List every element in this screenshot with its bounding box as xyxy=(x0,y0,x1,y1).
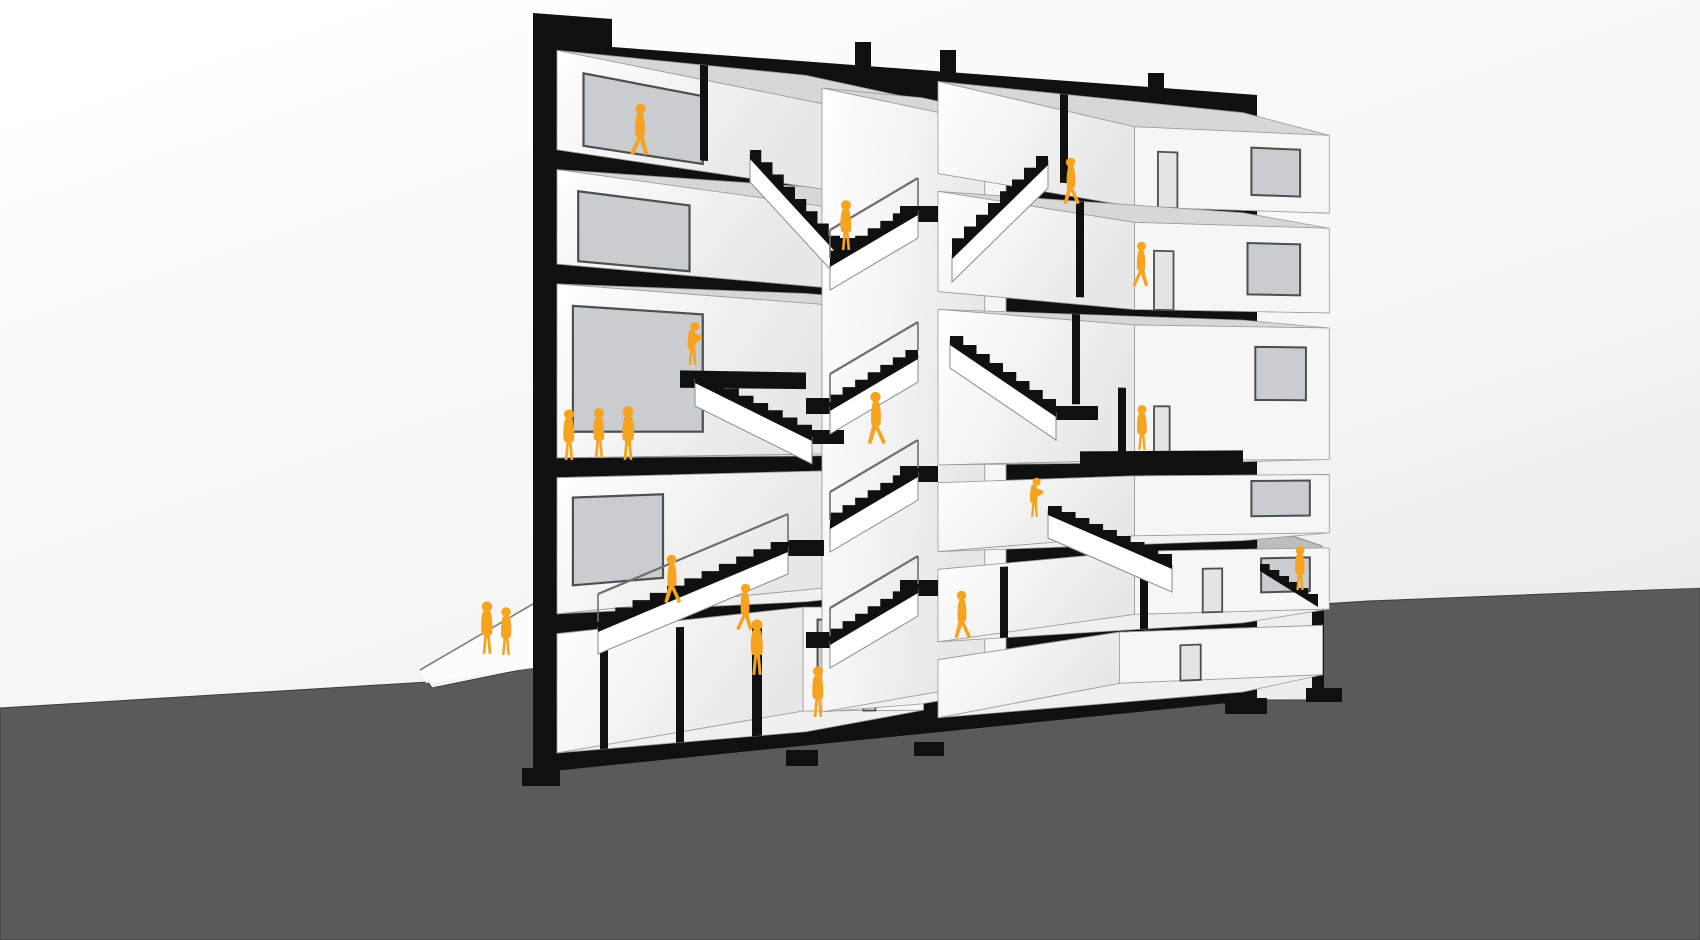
figure-walking-right-4-head xyxy=(1137,242,1146,251)
right-top-partition xyxy=(1060,94,1068,183)
figure-ground-stair-walker-head xyxy=(667,555,677,565)
figure-right-rail-leaning-head xyxy=(1032,478,1040,486)
footing-1 xyxy=(522,768,560,786)
right-3-partition xyxy=(1072,314,1080,404)
window-side-wall xyxy=(573,306,703,432)
window-back-wall xyxy=(1255,347,1306,400)
door-back-wall xyxy=(1203,568,1222,612)
footing-5 xyxy=(1225,698,1267,714)
window-back-wall xyxy=(1251,481,1309,517)
figure-basement-core-head xyxy=(813,666,823,676)
roof-parapet-stub-1 xyxy=(855,42,871,70)
roof-parapet-stub-2 xyxy=(940,50,956,76)
ground-stair-landing xyxy=(788,540,824,556)
basement-partition-2 xyxy=(676,627,684,743)
door-back-wall xyxy=(1158,152,1177,209)
room-side-wall xyxy=(938,309,1135,465)
figure-right-3-standing-head xyxy=(1138,405,1147,414)
figure-ground-floor-walker-head xyxy=(741,584,750,593)
partition-top-left xyxy=(700,65,708,161)
figure-group-left-3-head xyxy=(623,406,634,417)
mezz-stair-landing xyxy=(812,430,844,444)
roof-parapet-stub-3 xyxy=(1148,73,1164,91)
figure-mezzanine-climber-head xyxy=(690,322,699,331)
right-3-subslab xyxy=(1080,450,1243,466)
figure-core-stair-mid-head xyxy=(870,392,880,402)
door-back-wall xyxy=(1154,251,1173,310)
figure-core-landing-top-head xyxy=(841,200,851,210)
footing-3 xyxy=(914,742,944,756)
window-back-wall xyxy=(1248,243,1301,295)
right-3-partition-b xyxy=(1118,388,1126,463)
room-back-wall xyxy=(1119,625,1322,683)
figure-exterior-stair-right-head xyxy=(1296,546,1305,555)
right-1-partition-a xyxy=(1000,567,1008,638)
architectural-section-canvas xyxy=(0,0,1700,940)
figure-stair-top-right-head xyxy=(1066,158,1075,167)
footing-2 xyxy=(786,750,818,766)
figure-sidewalk-pair-1-head xyxy=(482,601,492,611)
window-side-wall xyxy=(578,191,689,271)
figure-group-left-2-head xyxy=(594,408,604,418)
right-4-partition xyxy=(1076,201,1084,297)
figure-walking-top-left-head xyxy=(635,104,645,114)
figure-entry-hall-head xyxy=(751,619,762,630)
figure-sidewalk-pair-2-head xyxy=(501,607,511,617)
window-back-wall xyxy=(1251,148,1300,197)
figure-core-stair-lower-head xyxy=(957,591,967,601)
right-mid-landing xyxy=(1056,406,1098,420)
figure-group-left-1-head xyxy=(564,409,574,419)
building-section-diagram xyxy=(0,0,1700,940)
footing-6 xyxy=(1306,688,1342,702)
door-back-wall xyxy=(1180,645,1200,681)
